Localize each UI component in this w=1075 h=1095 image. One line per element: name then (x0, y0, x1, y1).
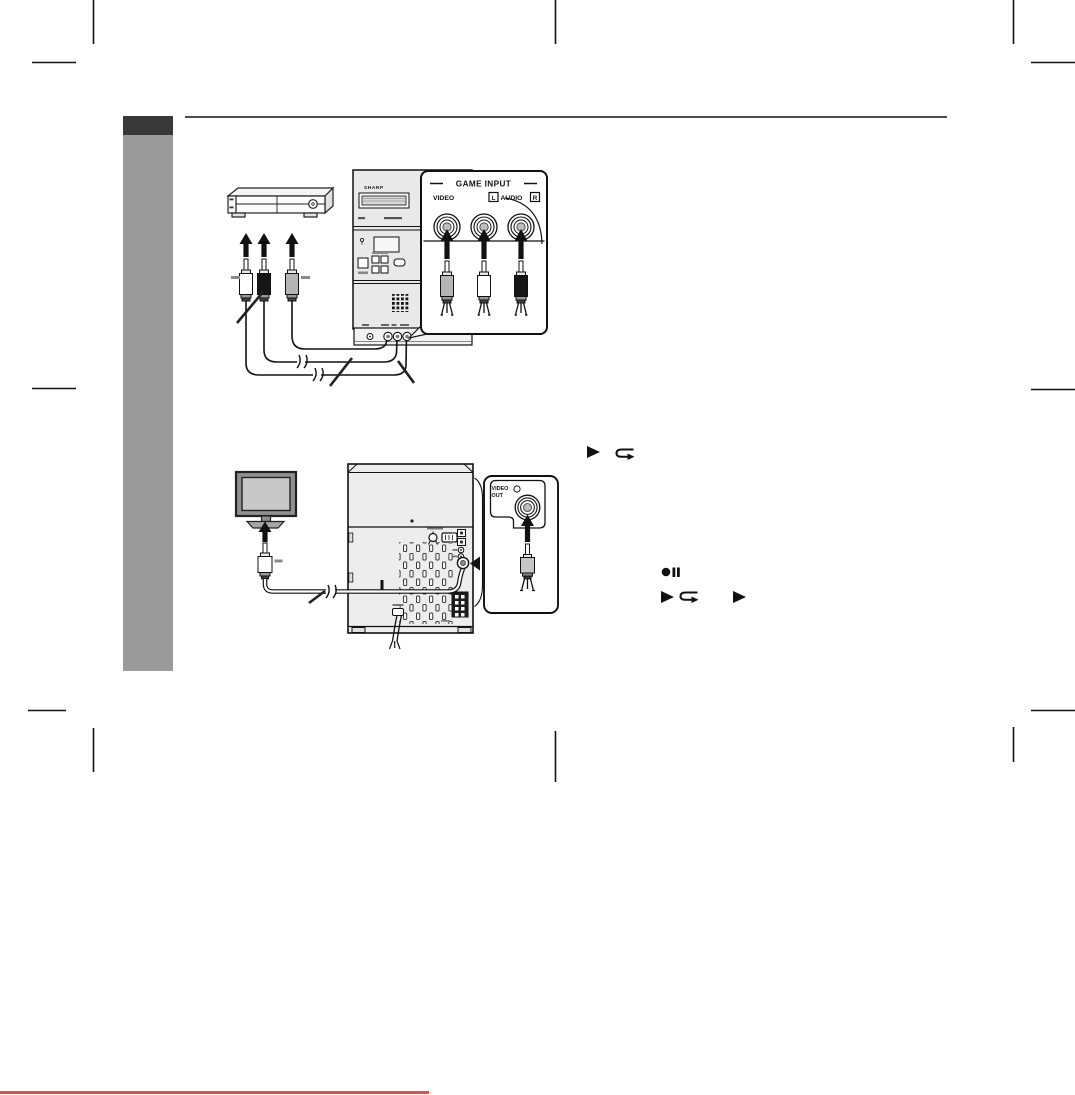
audio-l-label: L (492, 195, 496, 202)
loop-return-icon (617, 450, 635, 461)
screw-hole (514, 486, 520, 492)
audio-r-label: R (533, 195, 538, 202)
cable-break-mark (326, 584, 336, 599)
video-out-label-line2: OUT (492, 493, 504, 499)
loop-return-icon (681, 593, 699, 604)
instruction-icons (587, 446, 746, 603)
tv-rca-plug (258, 543, 283, 579)
manual-page: SHARP (0, 0, 1075, 1095)
video-label: VIDEO (433, 195, 454, 202)
play-icon (587, 446, 600, 458)
bottom-connection-diagram: VIDEO OUT (236, 464, 558, 649)
base-rca-jacks (384, 332, 411, 340)
top-connection-diagram: SHARP (228, 170, 547, 386)
play-icon (733, 591, 746, 603)
plug-side-mark (301, 276, 310, 279)
up-arrow-icons (240, 233, 299, 257)
stereo-rear-view (348, 464, 473, 649)
play-icon (661, 591, 674, 603)
record-pause-icon (662, 568, 680, 578)
brand-logo: SHARP (364, 185, 384, 191)
rca-plug-white (240, 259, 253, 301)
game-console-device (228, 188, 333, 217)
diagram-canvas: SHARP (0, 0, 1075, 1095)
plug-side-mark (231, 276, 240, 279)
tv-device (236, 472, 296, 528)
game-input-title: GAME INPUT (456, 180, 511, 189)
rca-plug-gray (286, 259, 299, 301)
cable-break-mark (297, 355, 323, 382)
game-input-callout: GAME INPUT VIDEO L AUDIO R (421, 171, 547, 334)
audio-label: AUDIO (501, 195, 523, 202)
video-out-callout: VIDEO OUT (484, 476, 558, 613)
video-out-label-line1: VIDEO (492, 486, 509, 492)
